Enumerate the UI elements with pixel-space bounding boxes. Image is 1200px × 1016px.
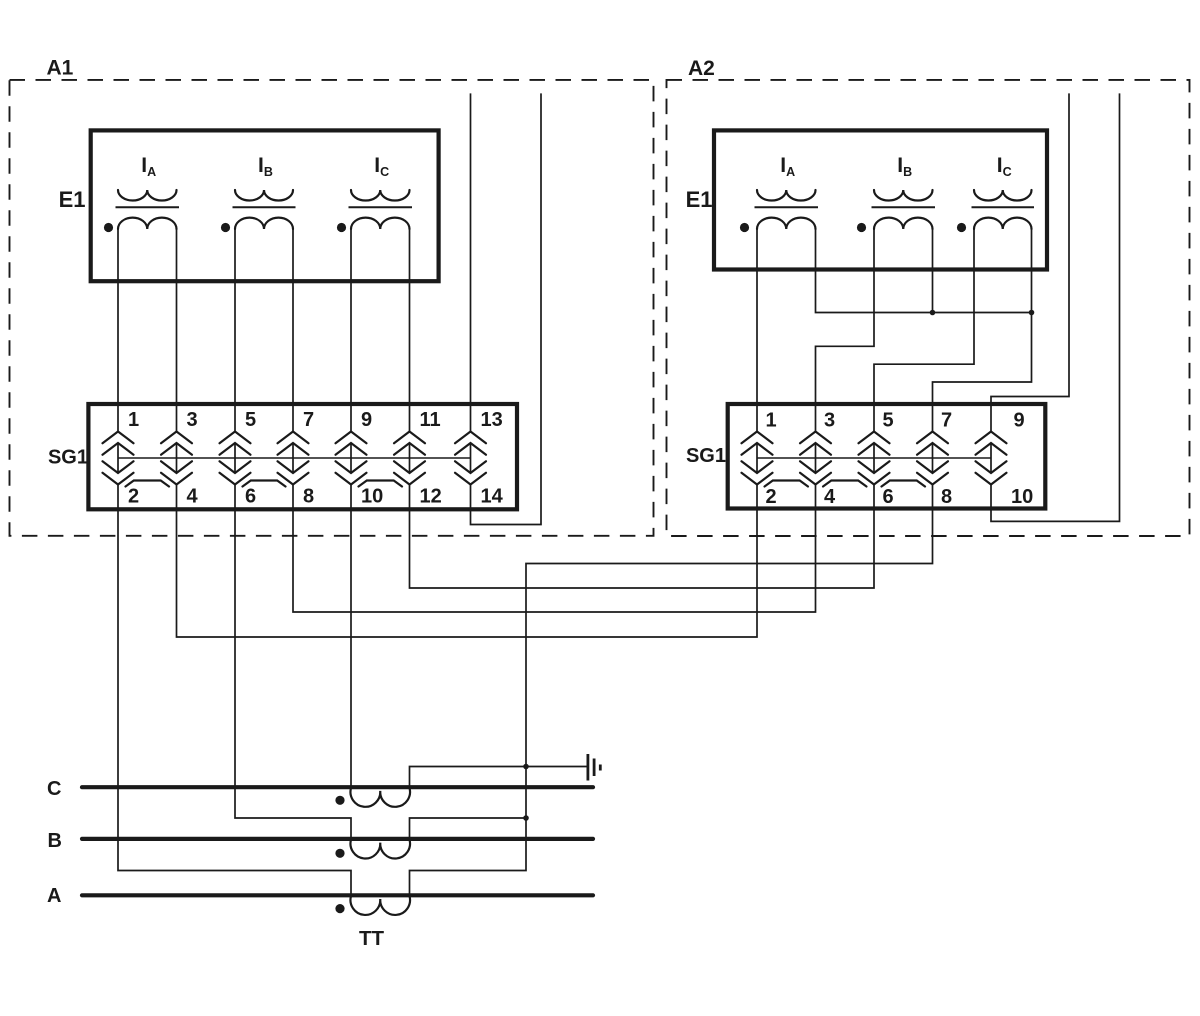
svg-text:E1: E1 xyxy=(59,187,86,212)
svg-text:E1: E1 xyxy=(686,187,713,212)
svg-text:SG1: SG1 xyxy=(48,447,88,469)
svg-text:7: 7 xyxy=(941,410,952,432)
svg-text:13: 13 xyxy=(481,409,503,431)
svg-text:2: 2 xyxy=(128,486,139,508)
svg-text:SG1: SG1 xyxy=(686,445,726,467)
svg-text:5: 5 xyxy=(883,410,894,432)
svg-text:IA: IA xyxy=(141,154,156,179)
svg-text:4: 4 xyxy=(824,486,836,508)
svg-text:5: 5 xyxy=(245,409,256,431)
svg-text:IC: IC xyxy=(997,154,1012,179)
svg-text:1: 1 xyxy=(766,410,777,432)
svg-text:9: 9 xyxy=(361,409,372,431)
svg-text:IC: IC xyxy=(374,154,389,179)
svg-text:A2: A2 xyxy=(688,57,715,80)
svg-text:3: 3 xyxy=(187,409,198,431)
svg-text:4: 4 xyxy=(187,486,199,508)
svg-text:TT: TT xyxy=(359,927,385,950)
svg-text:B: B xyxy=(48,830,62,852)
svg-text:14: 14 xyxy=(481,486,504,508)
svg-text:IB: IB xyxy=(258,154,273,179)
svg-text:C: C xyxy=(47,778,61,800)
svg-text:7: 7 xyxy=(303,409,314,431)
svg-text:3: 3 xyxy=(824,410,835,432)
svg-text:11: 11 xyxy=(420,409,441,431)
svg-text:IA: IA xyxy=(780,154,795,179)
svg-text:12: 12 xyxy=(420,486,442,508)
svg-text:6: 6 xyxy=(245,486,256,508)
svg-text:10: 10 xyxy=(361,486,383,508)
svg-text:A: A xyxy=(47,885,61,907)
svg-text:8: 8 xyxy=(303,486,314,508)
svg-text:2: 2 xyxy=(766,486,777,508)
svg-text:IB: IB xyxy=(897,154,912,179)
svg-text:9: 9 xyxy=(1014,410,1025,432)
svg-text:A1: A1 xyxy=(47,57,74,80)
svg-text:6: 6 xyxy=(883,486,894,508)
svg-text:1: 1 xyxy=(128,409,139,431)
svg-text:10: 10 xyxy=(1011,486,1033,508)
svg-text:8: 8 xyxy=(941,486,952,508)
